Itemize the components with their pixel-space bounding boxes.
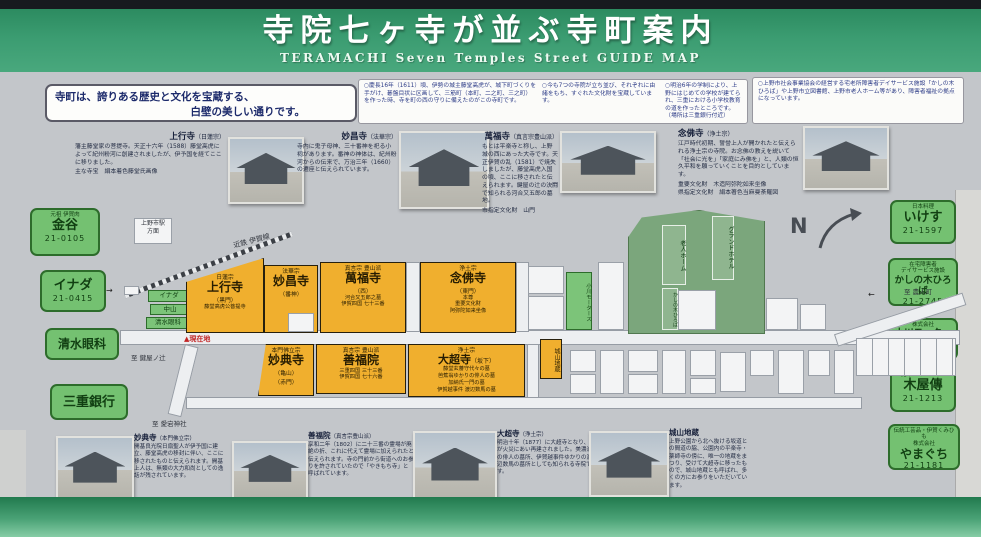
sign-post xyxy=(955,190,981,537)
station-block xyxy=(124,286,139,295)
photo-daichoji xyxy=(413,431,497,501)
desc-jogyoji-title: 上行寺（日蓮宗） xyxy=(75,130,225,142)
building-block xyxy=(808,350,830,376)
caption-daichoji: 大超寺（浄土宗） 明治十年（1877）に大超寺となり、寺が火災にあい再建されまし… xyxy=(497,428,595,476)
temple-name: 妙典寺 xyxy=(259,354,313,367)
photo-myotenji xyxy=(56,436,134,502)
pointer-arrow-icon: → xyxy=(106,286,113,295)
note-4: ○上野市社会事業協会の経営する宅老所障害者デイサービス施設「かしの木ひろば」や上… xyxy=(758,81,958,104)
shop-phone: 21-1213 xyxy=(893,394,953,403)
map-block-nakayama: 中山 xyxy=(150,304,190,315)
temple-note: （東門） xyxy=(421,286,515,295)
header-band: 寺院七ヶ寺が並ぶ寺町案内 TERAMACHI Seven Temples Str… xyxy=(0,9,981,72)
shop-phone: 21-1181 xyxy=(891,461,957,470)
desc-myoshoji: 妙昌寺（法華宗） 寺内に鬼子母神、三十番神を祀る小祠があります。番神の神体は、紀… xyxy=(297,130,397,175)
desc-jogyoji: 上行寺（日蓮宗） 藩主藤堂家の菩提寺。天正十六年（1588）藤堂高虎によって紀州… xyxy=(75,130,225,177)
temple-note: （黒門） xyxy=(187,295,263,304)
shop-sign-yamaguchi: 伝統工芸品・伊賀くみひも 株式会社 やまぐち 21-1181 xyxy=(888,424,960,470)
building-block xyxy=(598,262,624,330)
building-block xyxy=(690,350,716,376)
caption-body: 享和二年（1802）に二十三番の霊場が廃絶の折、これに代えて霊場に加えられたと伝… xyxy=(308,442,414,478)
temple-name: 妙昌寺 xyxy=(341,132,367,142)
caption-title: 城山地蔵 xyxy=(669,427,751,438)
caption-title: 大超寺（浄土宗） xyxy=(497,428,595,439)
shop-tag: 伝統工芸品・伊賀くみひも 株式会社 xyxy=(891,428,957,447)
guide-map-sign: 寺院七ヶ寺が並ぶ寺町案内 TERAMACHI Seven Temples Str… xyxy=(0,0,981,537)
building-block xyxy=(600,350,624,394)
building-block xyxy=(528,266,564,294)
temple-name: 妙昌寺 xyxy=(265,275,317,288)
caption-shiroyama-jizo: 城山地蔵 上野公園から北へ抜ける坂道との間道の脇、公園内の平楽寺・薬師寺の傍に、… xyxy=(669,427,751,490)
map-temple-daichoji: 浄土宗 大超寺（坂下） 藤堂玄蕃守代々の墓 芭蕉翁ゆかりの俳人の墓 加納氏一門の… xyxy=(408,344,525,397)
map-temple-myotenji: 本門佛立宗 妙典寺 （亀山） （赤門） xyxy=(258,344,314,396)
temple-note2: 三重四国 三十三番 伊賀四国 七十六番 xyxy=(317,368,405,382)
temple-name: 大超寺（坂下） xyxy=(409,354,524,366)
building-block xyxy=(570,374,596,394)
temple-sect: （浄土宗） xyxy=(704,131,734,138)
photo-nenbutsuji xyxy=(803,126,889,190)
desc-nenbutsuji-extra: 重要文化財 木造阿弥陀如来坐像 県指定文化財 絹本著色当麻曼荼羅図 xyxy=(678,182,800,197)
temple-sect: （法華宗） xyxy=(367,134,397,141)
temple-sect: （真言宗豊山派） xyxy=(510,134,558,141)
desc-manpukuji-body: もとは平楽寺と称し、上野城の西にあった大寺です。天正伊賀の乱（1581）で焼失し… xyxy=(482,144,558,206)
temple-name: 上行寺 xyxy=(169,132,195,142)
building-block xyxy=(528,296,564,330)
photo-top-edge xyxy=(0,0,981,9)
building-block xyxy=(690,378,716,394)
map-temple-nenbutsuji: 浄土宗 念佛寺 （東門） 本尊 重要文化財 阿弥陀如来坐像 xyxy=(420,262,516,333)
photo-jogyoji xyxy=(228,137,304,204)
building-block xyxy=(662,350,686,394)
map-block-shiroyama-jizo: 城山地蔵 xyxy=(540,339,562,379)
railway-destination-label: 上野市駅 方面 xyxy=(134,218,172,244)
shop-name: イナダ xyxy=(43,278,103,294)
map-facility-rojin-home: 老人ホーム xyxy=(662,225,686,285)
temple-name: 念佛寺 xyxy=(421,272,515,285)
side-road xyxy=(527,344,539,398)
desc-manpukuji: 萬福寺（真言宗豊山派） もとは平楽寺と称し、上野城の西にあった大寺です。天正伊賀… xyxy=(482,130,558,216)
map-facility-grand-hotel: グランドホテル xyxy=(712,216,734,280)
back-street xyxy=(186,397,862,409)
you-are-here-label: ▲現在地 xyxy=(184,334,210,344)
note-2: ○今も7つの寺院が立ち並び、それぞれに由緒をもち、すぐれた文化財を宝蔵しています… xyxy=(542,83,659,120)
photo-myoshoji xyxy=(399,131,489,209)
caption-title: 善福院（真言宗豊山派） xyxy=(308,430,414,441)
desc-myoshoji-title: 妙昌寺（法華宗） xyxy=(297,130,397,142)
direction-west-label: 至 鍵屋ノ辻 xyxy=(131,352,166,362)
temple-note2: 藤堂高虎公菩提寺 xyxy=(187,304,263,311)
shop-sign-inada: イナダ 21-0415 xyxy=(40,270,106,312)
shop-sign-ikesu: 日本料理 いけす 21-1597 xyxy=(890,200,956,244)
temple-note2: （赤門） xyxy=(259,377,313,386)
intro-line2: 白壁の美しい通りです。 xyxy=(55,104,347,119)
shop-name: いけす xyxy=(893,210,953,226)
north-arrow-icon xyxy=(810,206,866,252)
desc-manpukuji-title: 萬福寺（真言宗豊山派） xyxy=(482,130,558,142)
building-block xyxy=(628,374,658,394)
shop-tag: 在宅障害者 デイサービス施設 xyxy=(891,262,955,275)
direction-south-label: 至 愛宕神社 xyxy=(152,418,187,428)
note-3: ○明治6年の学制により、上野にはじめての学校が建てられ、三重における小学校教育の… xyxy=(665,83,742,120)
map-block-inada: イナダ xyxy=(148,290,190,302)
caption-body: 明治十年（1877）に大超寺となり、寺が火災にあい再建されました。美濃派の俳人の… xyxy=(497,440,595,476)
temple-name: 善福院 xyxy=(317,354,405,367)
shop-phone: 21-0105 xyxy=(33,234,97,243)
temple-name: 萬福寺 xyxy=(484,132,510,142)
shop-name: 清水眼科 xyxy=(48,337,116,351)
temple-note2: 本尊 重要文化財 阿弥陀如来坐像 xyxy=(421,295,515,315)
temple-name: 萬福寺 xyxy=(321,272,405,285)
pointer-arrow-icon: ← xyxy=(868,290,875,299)
map-temple-manpukuji: 真言宗 豊山派 萬福寺 （西） 河合又五郎之墓 伊賀四国 七十三番 xyxy=(320,262,406,333)
temple-note: （坂下） xyxy=(471,358,495,365)
desc-jogyoji-extra: 主な寺宝 絹本着色藤堂氏画像 xyxy=(75,169,225,177)
photo-zenpukuin xyxy=(232,441,308,499)
building-block xyxy=(288,313,314,332)
page-subtitle: TERAMACHI Seven Temples Street GUIDE MAP xyxy=(0,51,981,65)
notes-box: ○慶長16年（1611）頃、伊勢の城主藤堂高虎が、城下町づくりを手がけ、碁盤目状… xyxy=(358,79,748,124)
caption-title: 妙典寺（本門佛立宗） xyxy=(134,432,228,443)
note-1: ○慶長16年（1611）頃、伊勢の城主藤堂高虎が、城下町づくりを手がけ、碁盤目状… xyxy=(364,83,536,120)
caption-myotenji: 妙典寺（本門佛立宗） 開基良光院日扇聖人が伊予国に建立、藤堂高虎の移封に伴い、こ… xyxy=(134,432,228,480)
desc-nenbutsuji-body: 江戸時代初期、誓誉上人が開かれたと伝えられる浄土宗の寺院。お念佛の教えを説いて「… xyxy=(678,141,800,180)
shop-phone: 21-1597 xyxy=(893,226,953,235)
temple-name: 上行寺 xyxy=(187,281,263,294)
building-block xyxy=(750,350,774,376)
building-block xyxy=(720,352,746,392)
north-letter: N xyxy=(790,214,808,238)
desc-myoshoji-body: 寺内に鬼子母神、三十番神を祀る小祠があります。番神の神体は、紀州粉河からの伝来で… xyxy=(297,144,397,175)
photo-corner xyxy=(0,430,26,497)
map-block-shimizu: 清水眼科 xyxy=(146,317,190,329)
intro-line1: 寺町は、誇りある歴史と文化を宝蔵する、 xyxy=(55,89,347,104)
photo-manpukuji xyxy=(560,131,656,193)
temple-note: （西） xyxy=(321,286,405,295)
temple-note: （亀山） xyxy=(259,368,313,377)
shop-name: 木屋傳 xyxy=(893,378,953,394)
shop-sign-kanaya: 元祖 伊賀肉 金谷 21-0105 xyxy=(30,208,100,256)
temple-sect: （日蓮宗） xyxy=(195,134,225,141)
building-block xyxy=(678,290,716,330)
shop-name: 金谷 xyxy=(33,218,97,234)
building-block xyxy=(628,350,658,372)
building-block xyxy=(778,350,804,394)
temple-name: 念佛寺 xyxy=(678,129,704,139)
page-title: 寺院七ヶ寺が並ぶ寺町案内 xyxy=(0,11,981,51)
intro-box: 寺町は、誇りある歴史と文化を宝蔵する、 白壁の美しい通りです。 xyxy=(45,84,357,122)
building-block xyxy=(766,298,798,330)
desc-nenbutsuji-title: 念佛寺（浄土宗） xyxy=(678,127,800,139)
shop-sign-shimizu-ganka: 清水眼科 xyxy=(45,328,119,360)
side-road xyxy=(406,262,420,332)
desc-jogyoji-body: 藩主藤堂家の菩提寺。天正十六年（1588）藤堂高虎によって紀州粉河に創建されまし… xyxy=(75,144,225,167)
temple-note2: 藤堂玄蕃守代々の墓 芭蕉翁ゆかりの俳人の墓 加納氏一門の墓 伊賀越事件 渡辺数馬… xyxy=(409,366,524,393)
desc-nenbutsuji: 念佛寺（浄土宗） 江戸時代初期、誓誉上人が開かれたと伝えられる浄土宗の寺院。お念… xyxy=(678,127,800,197)
shop-name: 三重銀行 xyxy=(53,395,125,411)
shop-phone: 21-0415 xyxy=(43,294,103,303)
shop-sign-mie-bank: 三重銀行 xyxy=(50,384,128,420)
shop-name: やまぐち xyxy=(891,447,957,461)
temple-note2: 河合又五郎之墓 伊賀四国 七十三番 xyxy=(321,295,405,309)
map-block-ogawa-motors: 小川モータース xyxy=(566,272,592,330)
desc-manpukuji-extra: 市指定文化財 山門 xyxy=(482,208,558,216)
temple-note: （番神） xyxy=(265,289,317,298)
bottom-green-band xyxy=(0,497,981,537)
caption-body: 開基良光院日扇聖人が伊予国に建立、藤堂高虎の移封に伴い、ここに移されたものと伝え… xyxy=(134,444,228,480)
building-row xyxy=(856,338,956,376)
direction-east-label: 至 農人町 xyxy=(904,286,932,296)
map-temple-zenpukuin: 真言宗 豊山派 善福院 三重四国 三十三番 伊賀四国 七十六番 xyxy=(316,344,406,394)
note-4-box: ○上野市社会事業協会の経営する宅老所障害者デイサービス施設「かしの木ひろば」や上… xyxy=(752,77,964,124)
building-block xyxy=(570,350,596,372)
caption-zenpukuin: 善福院（真言宗豊山派） 享和二年（1802）に二十三番の霊場が廃絶の折、これに代… xyxy=(308,430,414,478)
photo-shiroyama-jizo xyxy=(589,431,669,497)
building-block xyxy=(800,304,826,330)
map-facility-kashinoki: かしの木ひろば xyxy=(662,288,678,330)
caption-body: 上野公園から北へ抜ける坂道との間道の脇、公園内の平楽寺・薬師寺の傍に、唯一の地蔵… xyxy=(669,439,751,490)
building-block xyxy=(834,350,854,394)
